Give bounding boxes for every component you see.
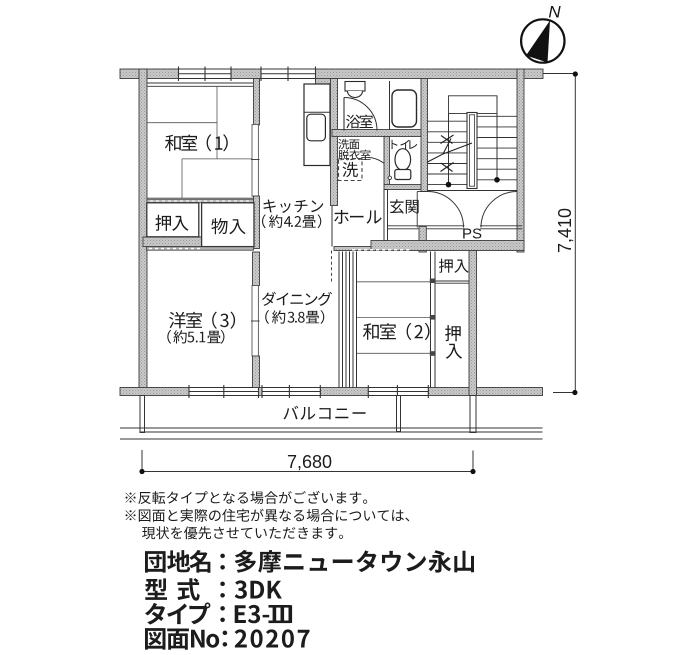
svg-text:N: N <box>548 2 561 21</box>
svg-text:7,410: 7,410 <box>555 208 575 253</box>
svg-text:7,680: 7,680 <box>287 452 332 472</box>
